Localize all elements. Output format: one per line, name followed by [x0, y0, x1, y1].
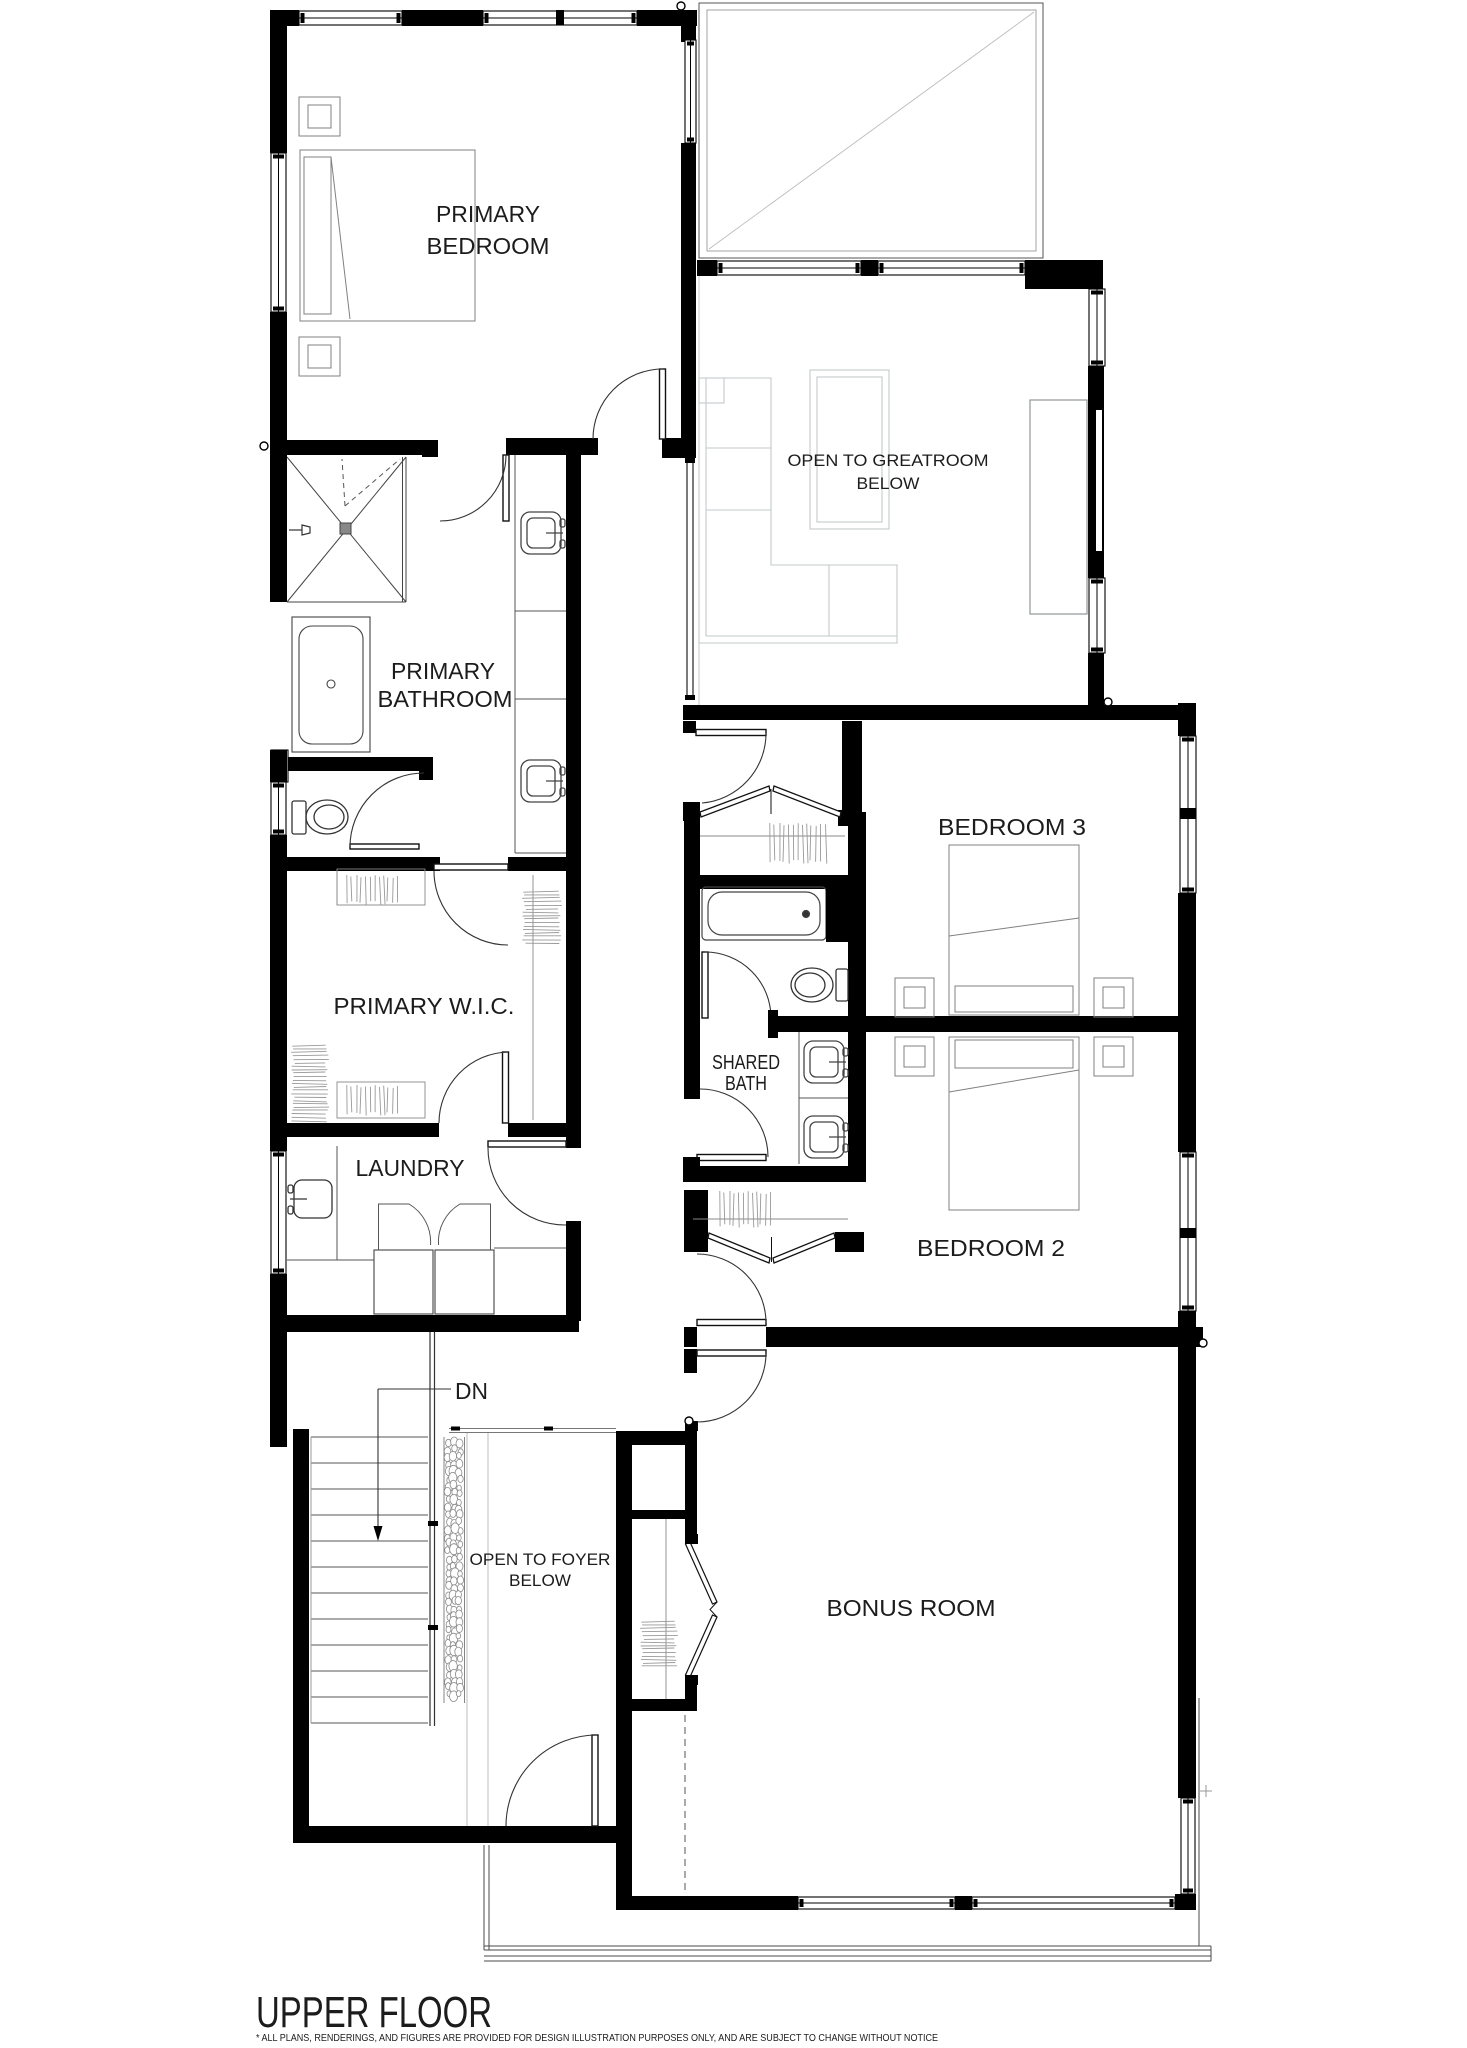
svg-text:* ALL PLANS, RENDERINGS, AND F: * ALL PLANS, RENDERINGS, AND FIGURES ARE…: [256, 2033, 938, 2044]
svg-text:BEDROOM 3: BEDROOM 3: [938, 814, 1086, 840]
svg-text:SHARED: SHARED: [712, 1052, 780, 1074]
svg-text:PRIMARY W.I.C.: PRIMARY W.I.C.: [334, 993, 515, 1019]
svg-text:BEDROOM 2: BEDROOM 2: [917, 1235, 1065, 1261]
svg-text:PRIMARY: PRIMARY: [391, 658, 495, 684]
svg-text:BONUS ROOM: BONUS ROOM: [827, 1595, 996, 1621]
svg-text:OPEN TO GREATROOM: OPEN TO GREATROOM: [788, 451, 989, 470]
svg-text:DN: DN: [455, 1378, 488, 1404]
svg-text:OPEN TO FOYER: OPEN TO FOYER: [470, 1550, 611, 1569]
svg-text:BELOW: BELOW: [509, 1571, 571, 1590]
svg-text:UPPER FLOOR: UPPER FLOOR: [256, 1988, 492, 2037]
svg-text:BATHROOM: BATHROOM: [378, 686, 513, 712]
svg-text:BATH: BATH: [725, 1073, 767, 1095]
svg-text:BELOW: BELOW: [857, 474, 920, 493]
svg-text:BEDROOM: BEDROOM: [427, 233, 550, 259]
svg-text:PRIMARY: PRIMARY: [436, 201, 540, 227]
svg-text:LAUNDRY: LAUNDRY: [356, 1155, 465, 1181]
